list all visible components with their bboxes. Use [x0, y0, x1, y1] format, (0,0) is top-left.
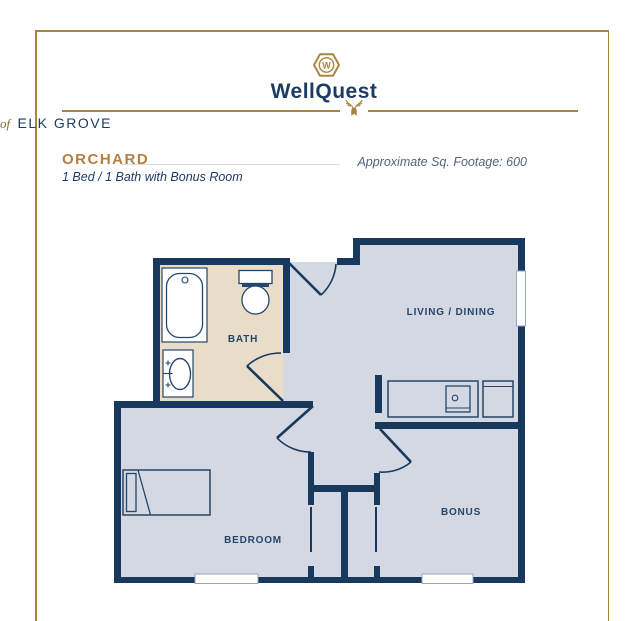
- room-label-bath: BATH: [228, 334, 258, 345]
- room-label-bedroom: BEDROOM: [224, 535, 282, 546]
- floorplan-page: { "brand": { "monogram": "W", "name": "W…: [0, 0, 640, 621]
- floorplan-drawing: BATH LIVING / DINING BEDROOM BONUS: [0, 0, 640, 621]
- toilet: [239, 271, 272, 315]
- window-bonus: [422, 574, 473, 584]
- window-bedroom: [195, 574, 258, 584]
- room-label-bonus: BONUS: [441, 507, 481, 518]
- bathtub: [162, 268, 207, 342]
- window-living: [517, 271, 526, 326]
- room-label-living-dining: LIVING / DINING: [407, 307, 496, 318]
- bath-sink: [163, 350, 193, 397]
